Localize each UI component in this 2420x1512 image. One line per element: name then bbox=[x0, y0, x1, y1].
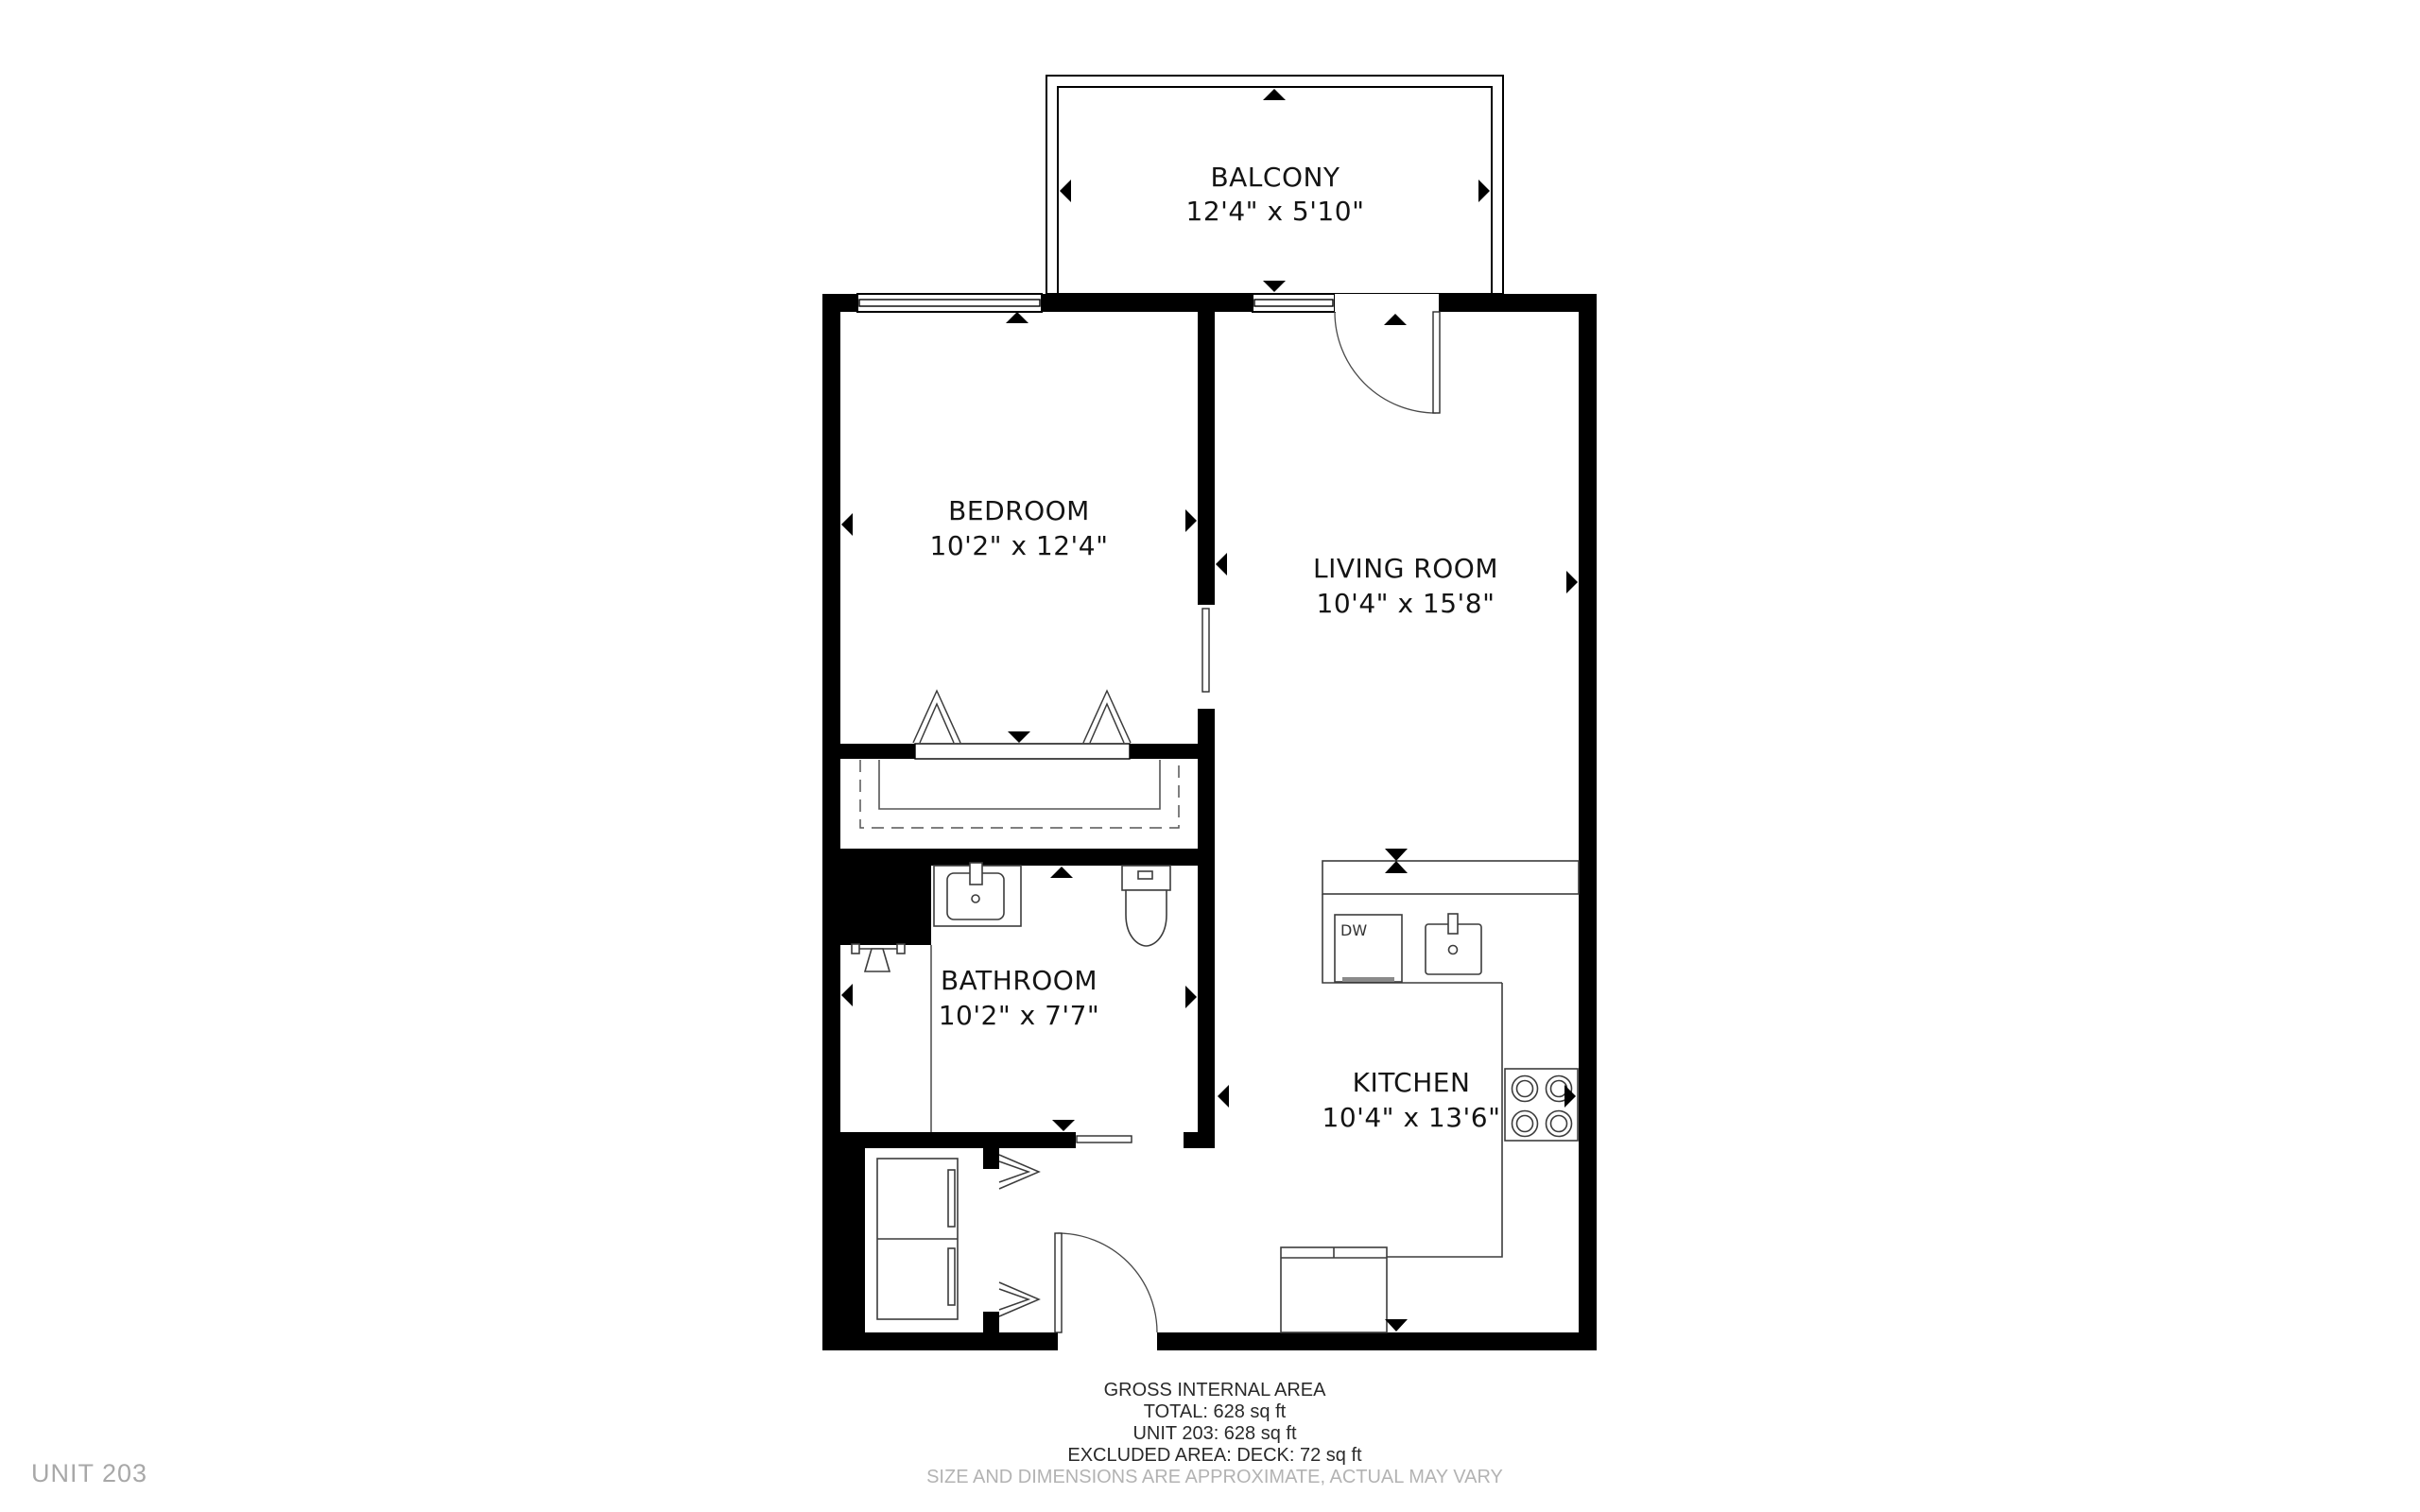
area-summary-heading: GROSS INTERNAL AREA bbox=[837, 1380, 1593, 1401]
area-summary-unit: UNIT 203: 628 sq ft bbox=[837, 1423, 1593, 1445]
balcony-name: BALCONY bbox=[1210, 162, 1340, 193]
entry-door bbox=[1055, 1233, 1157, 1350]
bedroom-closet bbox=[860, 691, 1179, 828]
room-label-bathroom: BATHROOM 10'2" x 7'7" bbox=[939, 965, 1100, 1031]
room-label-bedroom: BEDROOM 10'2" x 12'4" bbox=[930, 495, 1109, 561]
area-summary-excluded: EXCLUDED AREA: DECK: 72 sq ft bbox=[837, 1445, 1593, 1467]
floorplan-page: DW bbox=[0, 0, 2420, 1512]
bathroom-name: BATHROOM bbox=[941, 965, 1098, 996]
kitchen-sink bbox=[1426, 914, 1481, 974]
kitchen-dims: 10'4" x 13'6" bbox=[1322, 1102, 1501, 1133]
room-label-kitchen: KITCHEN 10'4" x 13'6" bbox=[1322, 1067, 1501, 1133]
bathroom-dims: 10'2" x 7'7" bbox=[939, 1000, 1100, 1031]
area-summary: GROSS INTERNAL AREA TOTAL: 628 sq ft UNI… bbox=[837, 1380, 1593, 1488]
shower bbox=[852, 944, 931, 1132]
bedroom-sliding-door bbox=[1202, 609, 1209, 692]
bedroom-window bbox=[857, 294, 1042, 312]
kitchen-name: KITCHEN bbox=[1353, 1067, 1471, 1098]
area-summary-disclaimer: SIZE AND DIMENSIONS ARE APPROXIMATE, ACT… bbox=[837, 1467, 1593, 1488]
room-label-living-room: LIVING ROOM 10'4" x 15'8" bbox=[1313, 553, 1498, 619]
area-summary-total: TOTAL: 628 sq ft bbox=[837, 1401, 1593, 1423]
toilet bbox=[1122, 866, 1170, 946]
balcony-dims: 12'4" x 5'10" bbox=[1186, 196, 1365, 227]
bedroom-dims: 10'2" x 12'4" bbox=[930, 530, 1109, 561]
balcony-fixed-panel-window bbox=[1253, 294, 1335, 312]
bedroom-name: BEDROOM bbox=[948, 495, 1090, 526]
floorplan-drawing: DW bbox=[0, 0, 2420, 1512]
living-room-dims: 10'4" x 15'8" bbox=[1317, 588, 1495, 619]
dishwasher: DW bbox=[1335, 915, 1402, 982]
bathroom-sliding-door bbox=[1077, 1136, 1132, 1143]
fridge bbox=[1281, 1247, 1387, 1332]
dishwasher-label: DW bbox=[1340, 921, 1367, 939]
laundry-closet bbox=[877, 1155, 1039, 1319]
bathroom-sink bbox=[934, 863, 1021, 926]
balcony-door bbox=[1335, 294, 1440, 413]
unit-watermark: UNIT 203 bbox=[31, 1459, 147, 1488]
living-room-name: LIVING ROOM bbox=[1313, 553, 1498, 584]
